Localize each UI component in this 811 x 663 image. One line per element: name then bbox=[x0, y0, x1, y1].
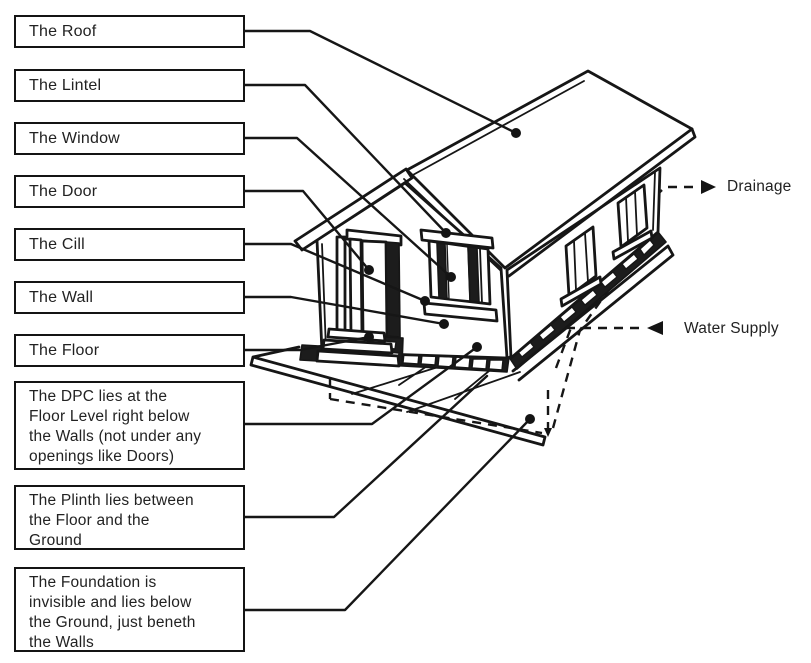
right-arrow-icon bbox=[701, 180, 716, 194]
marker-dot-roof bbox=[511, 128, 521, 138]
label-box-window: The Window bbox=[14, 122, 245, 155]
label-text: The Cill bbox=[16, 236, 85, 254]
label-text: The Plinth lies between the Floor and th… bbox=[16, 487, 243, 551]
label-box-wall: The Wall bbox=[14, 281, 245, 314]
marker-dot-foundation bbox=[525, 414, 535, 424]
water-supply-label: Water Supply bbox=[684, 320, 779, 338]
door-leaf bbox=[362, 241, 387, 336]
label-text: The Wall bbox=[16, 289, 93, 307]
porch-post bbox=[337, 237, 345, 333]
marker-dot-floor bbox=[364, 332, 374, 342]
marker-dot-dpc bbox=[472, 342, 482, 352]
marker-dot-door bbox=[364, 265, 374, 275]
label-box-floor: The Floor bbox=[14, 334, 245, 367]
marker-dot-cill bbox=[420, 296, 430, 306]
drainage-label: Drainage bbox=[727, 178, 792, 196]
label-text: The Foundation is invisible and lies bel… bbox=[16, 569, 243, 653]
label-text: The DPC lies at the Floor Level right be… bbox=[16, 383, 243, 467]
marker-dot-wall bbox=[439, 319, 449, 329]
left-arrow-icon bbox=[647, 321, 663, 335]
label-box-lintel: The Lintel bbox=[14, 69, 245, 102]
label-box-roof: The Roof bbox=[14, 15, 245, 48]
label-box-door: The Door bbox=[14, 175, 245, 208]
label-box-foundation: The Foundation is invisible and lies bel… bbox=[14, 567, 245, 652]
leader-foundation bbox=[245, 419, 530, 610]
label-text: The Door bbox=[16, 183, 97, 201]
leader-roof bbox=[245, 31, 516, 133]
label-text: The Roof bbox=[16, 23, 96, 41]
label-text: The Window bbox=[16, 130, 120, 148]
diagram-canvas: The Roof The Lintel The Window The Door … bbox=[0, 0, 811, 663]
label-text: The Lintel bbox=[16, 77, 101, 95]
marker-dot-window bbox=[446, 272, 456, 282]
marker-dot-lintel bbox=[441, 228, 451, 238]
label-box-dpc: The DPC lies at the Floor Level right be… bbox=[14, 381, 245, 470]
label-text: The Floor bbox=[16, 342, 99, 360]
label-box-cill: The Cill bbox=[14, 228, 245, 261]
label-box-plinth: The Plinth lies between the Floor and th… bbox=[14, 485, 245, 550]
